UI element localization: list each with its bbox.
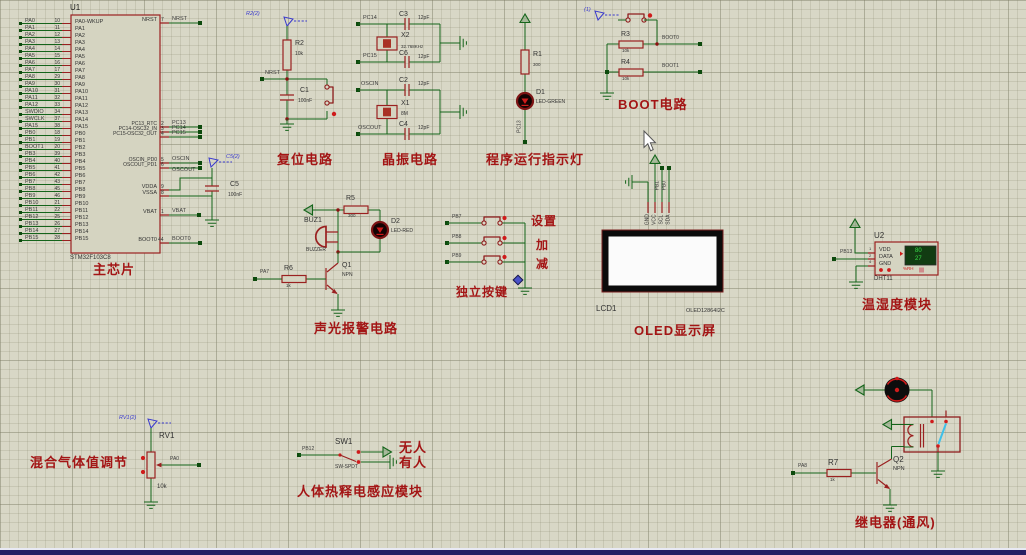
- pin-name: PB9: [75, 194, 85, 200]
- q2-part[interactable]: NPN: [893, 467, 905, 473]
- pin-stub: [62, 177, 71, 178]
- pin-number: 38: [37, 123, 60, 129]
- pin-stub: [62, 37, 71, 38]
- pin-num: 7: [161, 18, 164, 23]
- r6-ref[interactable]: R6: [284, 265, 293, 272]
- net-label-oscinb: OSCIN: [361, 82, 378, 88]
- dht-reading-temp: 27: [915, 256, 922, 262]
- dht-pin-vdd: VDD: [879, 248, 891, 254]
- u1-ref[interactable]: U1: [70, 4, 80, 12]
- section-label-crystal: 晶振电路: [382, 153, 438, 167]
- net-label-pb0: PB0: [662, 176, 667, 196]
- pin-number: 32: [37, 95, 60, 101]
- net-label-pb9: PB9: [452, 254, 461, 259]
- pin-number: 20: [37, 144, 60, 150]
- pin-number: 40: [37, 158, 60, 164]
- pin-name: PB0: [75, 131, 85, 137]
- oled-pin-sda: SDA: [666, 207, 671, 233]
- pin-name: PB6: [75, 173, 85, 179]
- pin-stub: [62, 23, 71, 24]
- rv1-pot: [147, 452, 155, 478]
- net-label-oscin: OSCIN: [172, 157, 189, 163]
- pin-stub: [62, 51, 71, 52]
- net-label-vbat: VBAT: [172, 209, 186, 215]
- chip-pa-pins[interactable]: PA0 10 PA0-WKUP PA1 11 PA1 PA2 12 PA2 PA…: [19, 19, 169, 131]
- schematic-canvas[interactable]: PA0 10 PA0-WKUP PA1 11 PA1 PA2 12 PA2 PA…: [0, 0, 1026, 555]
- pin-stub: [62, 44, 71, 45]
- c1-capacitor: [280, 95, 294, 100]
- boot-terminal-label[interactable]: (1): [584, 8, 591, 14]
- pin-name: PA15: [75, 124, 88, 130]
- section-label-pir: 人体热释电感应模块: [297, 485, 423, 499]
- origin-marker: [513, 275, 523, 285]
- pin-name: PB14: [75, 229, 88, 235]
- net-label-pa7: PA7: [260, 270, 269, 275]
- u2-ref[interactable]: U2: [874, 232, 884, 240]
- net-label-oscoutb: OSCOUT: [358, 126, 382, 132]
- d2-led: [372, 222, 388, 238]
- pin-stub: [62, 240, 71, 241]
- pin-name: PA0-WKUP: [75, 19, 103, 25]
- key-label-set: 设置: [531, 215, 557, 228]
- lcd1-ref[interactable]: LCD1: [596, 305, 616, 313]
- r4-resistor: [619, 69, 643, 76]
- c1-ref[interactable]: C1: [300, 87, 309, 94]
- key-label-minus: 减: [536, 258, 549, 271]
- pin-number: 28: [37, 235, 60, 241]
- relay-circuit[interactable]: [791, 377, 960, 512]
- pin-number: 46: [37, 193, 60, 199]
- r1-ref[interactable]: R1: [533, 51, 542, 58]
- r1-value[interactable]: 300: [533, 63, 541, 68]
- q1-ref[interactable]: Q1: [342, 262, 351, 269]
- pin-net-label: PB5: [25, 165, 35, 171]
- c2-value[interactable]: 12pF: [418, 82, 429, 87]
- r2-terminal-label[interactable]: R2(2): [246, 12, 260, 18]
- pin-number: 14: [37, 46, 60, 52]
- x1-crystal: [377, 106, 397, 119]
- oled-pin-vcc: VCC: [652, 207, 657, 233]
- pin-name: PB11: [75, 208, 88, 214]
- pin-stub: [62, 72, 71, 73]
- pin-name: PA12: [75, 103, 88, 109]
- r7-ref[interactable]: R7: [828, 459, 838, 467]
- pin-name: PA13: [75, 110, 88, 116]
- q2-ref[interactable]: Q2: [893, 456, 904, 464]
- r3-value[interactable]: 10k: [622, 49, 629, 54]
- pin-number: 25: [37, 214, 60, 220]
- section-label-keys: 独立按键: [456, 286, 508, 299]
- pin-name: PA1: [75, 26, 85, 32]
- pin-name: PA3: [75, 40, 85, 46]
- rv1-terminal-label[interactable]: RV1(2): [119, 416, 136, 422]
- buz1-part[interactable]: BUZZER: [306, 248, 326, 253]
- x1-ref[interactable]: X1: [401, 100, 410, 107]
- pin-stub: [62, 100, 71, 101]
- pin-net-label: PB8: [25, 186, 35, 192]
- d1-led: [517, 93, 533, 109]
- pin-stub: [62, 107, 71, 108]
- c5-ref[interactable]: C5: [230, 181, 239, 188]
- net-label-oscout: OSCOUT: [172, 168, 196, 174]
- r7-resistor: [827, 470, 851, 477]
- pin-name: PB13: [75, 222, 88, 228]
- pin-net-label: PB6: [25, 172, 35, 178]
- pin-num: 1: [161, 210, 164, 215]
- pin-stub: [62, 65, 71, 66]
- section-label-gas: 混合气体值调节: [30, 456, 128, 470]
- u1-part[interactable]: STM32F103C8: [70, 255, 111, 261]
- pin-name: PA4: [75, 47, 85, 53]
- pin-name: PB15: [75, 236, 88, 242]
- c3-value[interactable]: 12pF: [418, 16, 429, 21]
- pin-stub: [62, 30, 71, 31]
- pin-number: 42: [37, 172, 60, 178]
- pin-stub: [62, 233, 71, 234]
- dht-unit: %RH: [903, 267, 914, 272]
- pin-stub: [62, 163, 71, 164]
- pin-stub: [62, 156, 71, 157]
- crystal-circuit[interactable]: [356, 18, 466, 140]
- mouse-cursor: [644, 131, 656, 151]
- oled-pin-gnd: GND: [645, 207, 650, 233]
- section-label-alarm: 声光报警电路: [314, 322, 398, 336]
- pin-number: 26: [37, 221, 60, 227]
- section-label-dht: 温湿度模块: [862, 298, 932, 312]
- net-label-pb1: PB1: [655, 176, 660, 196]
- pin-stub: [62, 198, 71, 199]
- pin-name: PA9: [75, 82, 85, 88]
- r6-resistor: [282, 276, 306, 283]
- r4-ref[interactable]: R4: [621, 59, 630, 66]
- rv1-value[interactable]: 10k: [157, 484, 167, 490]
- pin-number: 45: [37, 186, 60, 192]
- pin-number: 10: [37, 18, 60, 24]
- section-label-chip: 主芯片: [93, 263, 135, 277]
- pin-name-vssa: VSSA: [110, 191, 157, 197]
- pin-number: 13: [37, 39, 60, 45]
- dht-pin2-num: 2: [869, 254, 871, 258]
- pin-net-label: PB1: [25, 137, 35, 143]
- pin-number: 17: [37, 67, 60, 73]
- c4-value[interactable]: 12pF: [418, 126, 429, 131]
- pin-number: 22: [37, 207, 60, 213]
- proteus-schematic-window: PA0 10 PA0-WKUP PA1 11 PA1 PA2 12 PA2 PA…: [0, 0, 1026, 555]
- pin-number: 41: [37, 165, 60, 171]
- pin-net-label: PA6: [25, 60, 35, 66]
- net-label-pb7: PB7: [452, 215, 461, 220]
- relay-contact-lever: [939, 424, 947, 445]
- d2-ref[interactable]: D2: [391, 218, 400, 225]
- net-label-pa8: PA8: [798, 464, 807, 469]
- pin-number: 27: [37, 228, 60, 234]
- net-label-boot0b: BOOT0: [662, 36, 679, 41]
- r5-ref[interactable]: R5: [346, 195, 355, 202]
- pin-net-label: PB7: [25, 179, 35, 185]
- section-label-reset: 复位电路: [277, 153, 333, 167]
- pin-number: 29: [37, 74, 60, 80]
- r1-resistor: [521, 50, 529, 74]
- pin-net-label: PB3: [25, 151, 35, 157]
- net-label-pc13v: PC13: [517, 112, 522, 142]
- net-label-pc14b: PC14: [363, 16, 377, 22]
- pin-name: PA7: [75, 68, 85, 74]
- pin-name: PB2: [75, 145, 85, 151]
- dht-reading-humidity: 80: [915, 248, 922, 254]
- pin-stub: [62, 149, 71, 150]
- net-label-pc15b: PC15: [363, 54, 377, 60]
- pin-name: PB1: [75, 138, 85, 144]
- pin-name: PB8: [75, 187, 85, 193]
- net-label-pc15: PC15: [172, 131, 186, 137]
- pin-number: 18: [37, 130, 60, 136]
- pin-number: 37: [37, 116, 60, 122]
- pin-name: PA2: [75, 33, 85, 39]
- pin-stub: [62, 114, 71, 115]
- c1-value[interactable]: 100nF: [298, 99, 312, 104]
- net-label-boot0: BOOT0: [172, 237, 191, 243]
- section-label-relay: 继电器(通风): [855, 516, 936, 530]
- sw1-ref[interactable]: SW1: [335, 438, 352, 446]
- pin-stub: [62, 212, 71, 213]
- pin-net-label: PA1: [25, 25, 35, 31]
- key-minus-button: [482, 256, 502, 264]
- pin-net-label: PA8: [25, 74, 35, 80]
- pin-net-label: PA2: [25, 32, 35, 38]
- pin-name: OSCOUT_PD1: [110, 163, 157, 168]
- c6-ref[interactable]: C6: [399, 50, 408, 57]
- pin-stub: [62, 135, 71, 136]
- pin-stub: [62, 219, 71, 220]
- rv1-ref[interactable]: RV1: [159, 432, 174, 440]
- reset-button: [325, 85, 333, 105]
- pin-stub: [62, 121, 71, 122]
- pin-name: PA6: [75, 61, 85, 67]
- pin-stub: [62, 191, 71, 192]
- pin-name: PB3: [75, 152, 85, 158]
- pin-stub: [62, 128, 71, 129]
- r3-ref[interactable]: R3: [621, 31, 630, 38]
- pin-number: 16: [37, 60, 60, 66]
- r2-value[interactable]: 10k: [295, 52, 303, 57]
- pin-stub: [62, 58, 71, 59]
- d2-part[interactable]: LED-RED: [391, 229, 413, 234]
- c2-ref[interactable]: C2: [399, 77, 408, 84]
- pin-name: PA10: [75, 89, 88, 95]
- dht-pin1-num: 1: [869, 247, 871, 251]
- c3-ref[interactable]: C3: [399, 11, 408, 18]
- pin-name: PA11: [75, 96, 88, 102]
- pin-stub: [62, 86, 71, 87]
- section-label-oled: OLED显示屏: [634, 324, 716, 338]
- pin-stub: [62, 184, 71, 185]
- pin-number: 11: [37, 25, 60, 31]
- q1-transistor: [326, 263, 338, 294]
- net-label-boot1: BOOT1: [662, 64, 679, 69]
- pin-name-nrst: NRST: [110, 18, 157, 24]
- pin-number: 34: [37, 109, 60, 115]
- r7-value[interactable]: 1k: [830, 478, 835, 483]
- pin-net-label: PA9: [25, 81, 35, 87]
- pin-name: PB10: [75, 201, 88, 207]
- key-label-plus: 加: [536, 239, 549, 252]
- section-label-indicator: 程序运行指示灯: [486, 153, 584, 167]
- pin-stub: [62, 79, 71, 80]
- d1-part[interactable]: LED-GREEN: [536, 100, 565, 105]
- q1-part[interactable]: NPN: [342, 273, 353, 278]
- pin-number: 12: [37, 32, 60, 38]
- pin-number: 39: [37, 151, 60, 157]
- pin-name: PA5: [75, 54, 85, 60]
- key-set-button: [482, 217, 502, 225]
- net-label-pb8: PB8: [452, 235, 461, 240]
- pin-stub: [62, 170, 71, 171]
- relay-coil: [908, 425, 914, 447]
- boot-button: [626, 14, 646, 22]
- pin-number: 19: [37, 137, 60, 143]
- pin-stub: [62, 205, 71, 206]
- c6-value[interactable]: 12pF: [418, 55, 429, 60]
- sw1-part[interactable]: SW-SPDT: [335, 465, 358, 470]
- r2-ref[interactable]: R2: [295, 40, 304, 47]
- u2-part[interactable]: DHT11: [874, 276, 893, 282]
- sw1-lever: [340, 455, 356, 462]
- pin-name: PB12: [75, 215, 88, 221]
- boot-circuit[interactable]: [595, 11, 702, 99]
- pin-name: PB4: [75, 159, 85, 165]
- pin-name: PC15-OSC32_OUT: [110, 132, 157, 137]
- pin-name: PA14: [75, 117, 88, 123]
- pin-num: 4: [161, 132, 164, 137]
- buzzer-symbol: [316, 227, 326, 248]
- c4-ref[interactable]: C4: [399, 121, 408, 128]
- pin-name-vbat: VBAT: [110, 210, 157, 216]
- pin-stub: [62, 142, 71, 143]
- x2-crystal: [377, 37, 397, 50]
- pin-net-label: PB0: [25, 130, 35, 136]
- section-label-boot: BOOT电路: [618, 98, 688, 112]
- pin-net-label: PA7: [25, 67, 35, 73]
- pin-net-label: PB4: [25, 158, 35, 164]
- pir-state-nobody: 无人: [399, 441, 427, 455]
- r3-resistor: [619, 41, 643, 48]
- x2-ref[interactable]: X2: [401, 32, 410, 39]
- pir-state-somebody: 有人: [399, 456, 427, 470]
- net-label-pb12: PB12: [302, 447, 314, 452]
- pin-net-label: PA4: [25, 46, 35, 52]
- pin-net-label: PA11: [25, 95, 38, 101]
- net-label-nrst2: NRST: [265, 71, 280, 77]
- pin-number: 30: [37, 81, 60, 87]
- pin-name-boot0: BOOT0: [110, 238, 157, 244]
- r5-value[interactable]: 300: [348, 214, 356, 219]
- x1-value[interactable]: 8M: [401, 112, 408, 117]
- pin-num: 44: [158, 238, 164, 243]
- c5-terminal-label[interactable]: C5(2): [226, 155, 240, 161]
- pin-name: PB7: [75, 180, 85, 186]
- window-bottom-bar: [0, 548, 1026, 555]
- net-label-nrst: NRST: [172, 17, 187, 23]
- c5-value[interactable]: 100nF: [228, 193, 242, 198]
- lcd1-part[interactable]: OLED12864I2C: [686, 309, 725, 315]
- pin-net-label: PA5: [25, 53, 35, 59]
- net-label-pa0: PA0: [170, 457, 179, 462]
- pin-num: 6: [161, 163, 164, 168]
- q2-transistor: [877, 459, 892, 489]
- pin-number: 43: [37, 179, 60, 185]
- pin-net-label: PA3: [25, 39, 35, 45]
- pin-name: PB5: [75, 166, 85, 172]
- pin-number: 15: [37, 53, 60, 59]
- d1-ref[interactable]: D1: [536, 89, 545, 96]
- pin-number: 21: [37, 200, 60, 206]
- pin-number: 31: [37, 88, 60, 94]
- r2-resistor: [283, 40, 291, 70]
- net-label-pb13: PB13: [840, 250, 852, 255]
- pin-name: PA8: [75, 75, 85, 81]
- pin-stub: [62, 226, 71, 227]
- pin-net-label: PB9: [25, 193, 35, 199]
- pin-stub: [62, 93, 71, 94]
- r6-value[interactable]: 1k: [286, 284, 291, 289]
- dht-pin-data: DATA: [879, 255, 893, 261]
- key-plus-button: [482, 237, 502, 245]
- pin-number: 33: [37, 102, 60, 108]
- dht-pin3-num: 4: [869, 260, 871, 264]
- dht-pin-gnd: GND: [879, 262, 891, 268]
- x2-value[interactable]: 32.768KHz: [401, 45, 423, 50]
- oled-pin-scl: SCL: [659, 207, 664, 233]
- r4-value[interactable]: 10k: [622, 77, 629, 82]
- pin-num: 8: [161, 191, 164, 196]
- buz1-ref[interactable]: BUZ1: [304, 217, 322, 224]
- pin-net-label: PA0: [25, 18, 35, 24]
